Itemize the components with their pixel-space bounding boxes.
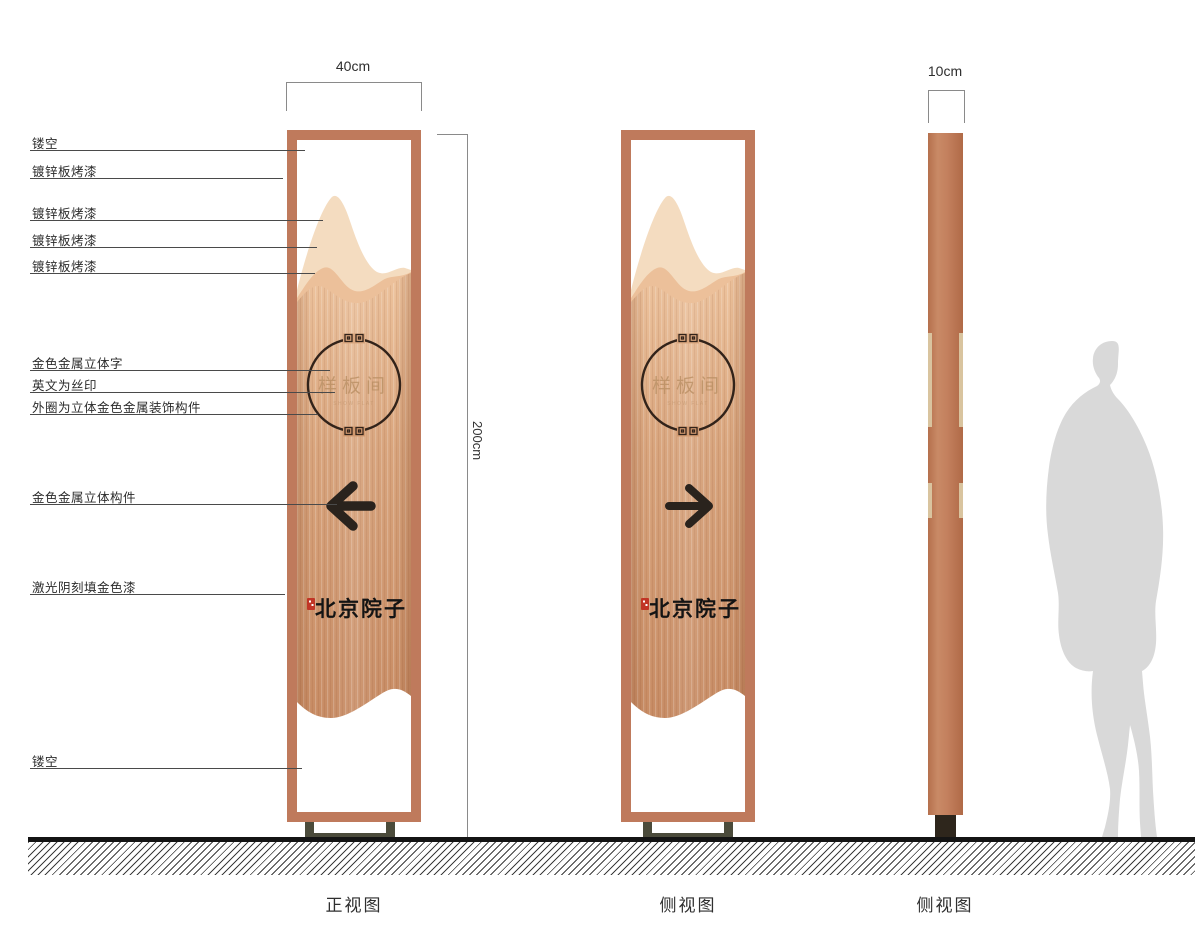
callout-label: 镀锌板烤漆 [30,203,323,222]
dimension-front-width-label: 40cm [286,58,420,74]
side-panel [928,133,963,815]
callout-galvanized-3: 镀锌板烤漆 [30,230,317,248]
dimension-height-label: 200cm [470,421,485,460]
view-label-front: 正视图 [287,891,421,916]
callout-label: 外圈为立体金色金属装饰构件 [30,397,318,416]
sign-side-artwork: 样板间 SHOW FLAT 北京院子 [631,140,745,812]
sign-side-view: 样板间 SHOW FLAT 北京院子 [621,130,755,822]
callout-ring-ornament: 外圈为立体金色金属装饰构件 [30,397,318,415]
callout-gold-letters: 金色金属立体字 [30,353,330,371]
brand-text: 北京院子 [315,597,407,621]
dimension-side-width-label: 10cm [900,63,990,79]
callout-silkscreen: 英文为丝印 [30,375,335,393]
callout-label: 英文为丝印 [30,375,335,394]
brand-text: 北京院子 [649,597,741,621]
callout-label: 镂空 [30,751,302,770]
seal-icon [307,598,315,610]
dimension-height-line [467,134,468,838]
side-panel-base [935,815,956,839]
plate-text: 样板间 [652,375,724,397]
callout-label: 金色金属立体构件 [30,487,337,506]
brand-mark: 北京院子 [307,597,407,621]
callout-label: 激光阴刻填金色漆 [30,577,285,596]
ground-line [28,837,1195,842]
callout-label: 镀锌板烤漆 [30,256,315,275]
english-subtext: SHOW FLAT [333,401,374,407]
callout-label: 镂空 [30,133,305,152]
callout-hollow-top: 镂空 [30,133,305,151]
dimension-front-width-bracket [286,82,422,111]
side-panel-strip [959,483,963,518]
side-panel-strip [959,333,963,427]
brand-mark: 北京院子 [641,597,741,621]
ground-hatch [28,842,1195,875]
seal-icon [641,598,649,610]
view-label-side2: 侧视图 [878,891,1012,916]
callout-label: 镀锌板烤漆 [30,230,317,249]
callout-gold-component: 金色金属立体构件 [30,487,337,505]
callout-galvanized-1: 镀锌板烤漆 [30,161,283,179]
callout-label: 金色金属立体字 [30,353,330,372]
dimension-height-tick [437,134,467,135]
callout-hollow-bottom: 镂空 [30,751,302,769]
callout-laser-engrave: 激光阴刻填金色漆 [30,577,285,595]
callout-galvanized-4: 镀锌板烤漆 [30,256,315,274]
side-panel-strip [928,483,932,518]
callout-label: 镀锌板烤漆 [30,161,283,180]
dimension-side-width-bracket [928,90,965,123]
signage-spec-sheet: 镂空 镀锌板烤漆 镀锌板烤漆 镀锌板烤漆 镀锌板烤漆 金色金属立体字 英文为丝印… [0,0,1195,927]
callout-galvanized-2: 镀锌板烤漆 [30,203,323,221]
person-silhouette [1036,337,1176,840]
side-panel-strip [928,333,932,427]
english-subtext: SHOW FLAT [667,401,708,407]
view-label-side: 侧视图 [621,891,755,916]
